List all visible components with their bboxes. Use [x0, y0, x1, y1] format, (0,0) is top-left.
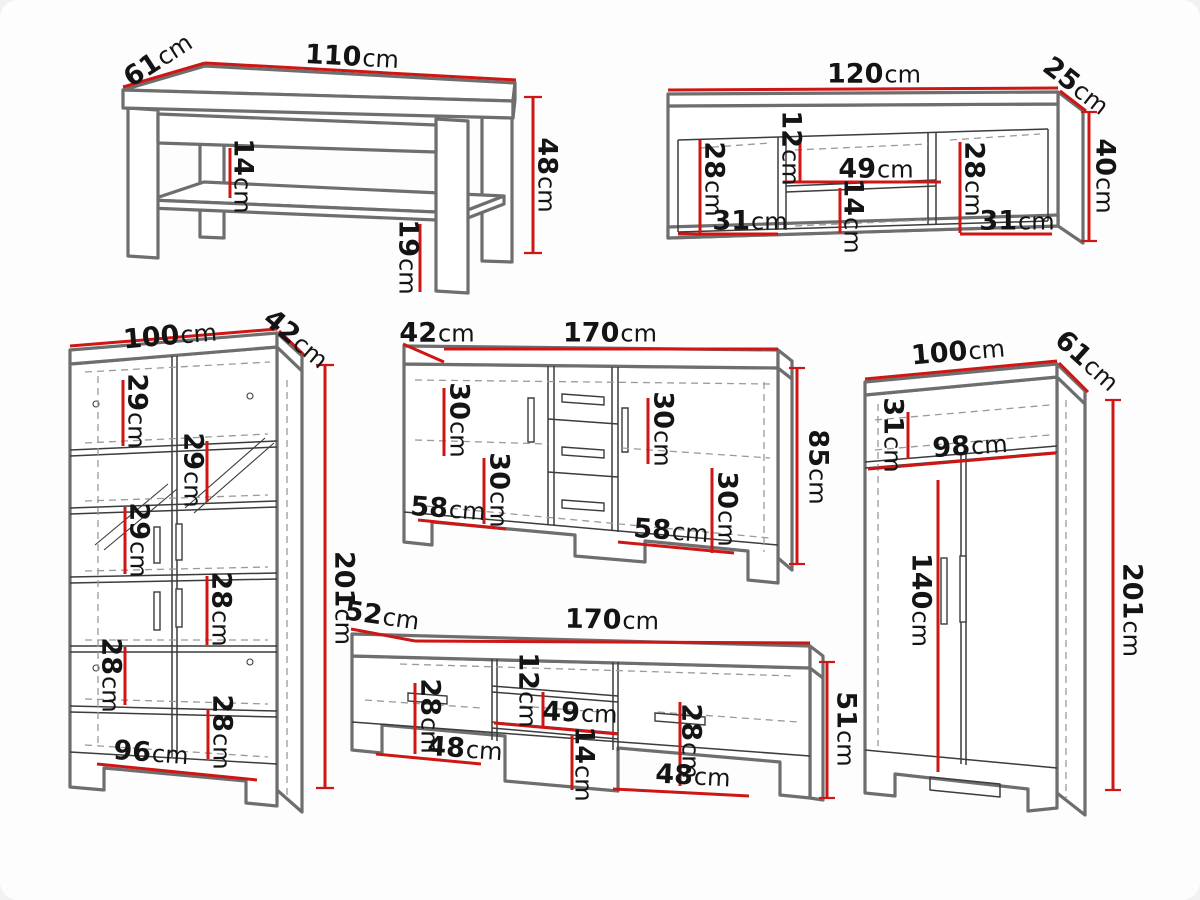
- dim-coffee-table-width: 110cm: [304, 41, 399, 73]
- dim-coffee-table-shelf-gap: 14cm: [230, 138, 257, 213]
- dim-display-cabinet-shelf-gap-1: 29cm: [124, 373, 151, 448]
- dim-wardrobe-height: 201cm: [1119, 563, 1146, 657]
- dim-tv-stand-niche-top-gap: 12cm: [515, 652, 542, 727]
- dim-tv-stand-left-opening-width: 48cm: [427, 733, 504, 765]
- dim-wall-shelf-left-opening-width: 31cm: [712, 208, 787, 235]
- furniture-dimensions-diagram: 61cm 110cm 48cm 14cm 19cm 120cm 25cm 40c…: [0, 0, 1200, 900]
- dim-tv-stand-width: 170cm: [565, 606, 659, 635]
- dim-tv-stand-niche-width: 49cm: [542, 698, 618, 728]
- dim-wall-shelf-niche-bottom-gap: 14cm: [840, 178, 867, 253]
- dim-sideboard-height: 85cm: [805, 429, 832, 504]
- dim-display-cabinet-shelf-gap-3: 29cm: [126, 502, 153, 577]
- dim-tv-stand-right-opening-width: 48cm: [655, 761, 731, 792]
- dim-sideboard-left-top-gap: 30cm: [446, 382, 473, 457]
- dim-display-cabinet-inner-width: 96cm: [113, 737, 190, 769]
- dim-sideboard-left-inner-width: 58cm: [410, 493, 487, 525]
- dim-wardrobe-inner-width: 98cm: [932, 430, 1009, 462]
- dim-display-cabinet-shelf-gap-6: 28cm: [209, 694, 236, 769]
- coffee-table-drawing: [123, 63, 542, 293]
- dim-sideboard-right-bottom-gap: 30cm: [714, 471, 741, 546]
- dim-sideboard-right-inner-width: 58cm: [633, 515, 710, 547]
- dim-wardrobe-top-shelf-gap: 31cm: [880, 397, 907, 472]
- display-cabinet-drawing: [70, 329, 334, 812]
- dim-sideboard-left-bottom-gap: 30cm: [486, 452, 513, 527]
- dim-wall-shelf-right-opening-width: 31cm: [979, 208, 1054, 235]
- dim-coffee-table-height: 48cm: [534, 137, 561, 212]
- dim-display-cabinet-shelf-gap-5: 28cm: [98, 637, 125, 712]
- dim-wall-shelf-height: 40cm: [1092, 138, 1119, 213]
- dim-wardrobe-hanging-height: 140cm: [908, 553, 935, 647]
- dim-wall-shelf-width: 120cm: [827, 61, 921, 88]
- dim-tv-stand-height: 51cm: [833, 691, 860, 766]
- dim-coffee-table-leg-height: 19cm: [395, 219, 422, 294]
- dim-display-cabinet-shelf-gap-4: 28cm: [208, 571, 235, 646]
- dim-sideboard-depth: 42cm: [399, 320, 474, 347]
- dim-sideboard-right-top-gap: 30cm: [650, 391, 677, 466]
- dim-display-cabinet-shelf-gap-2: 29cm: [180, 432, 207, 507]
- dim-sideboard-width: 170cm: [563, 320, 657, 347]
- dim-wall-shelf-niche-top-gap: 12cm: [778, 110, 805, 185]
- sideboard-drawing: [403, 344, 805, 583]
- dim-tv-stand-niche-bottom-gap: 14cm: [571, 726, 598, 801]
